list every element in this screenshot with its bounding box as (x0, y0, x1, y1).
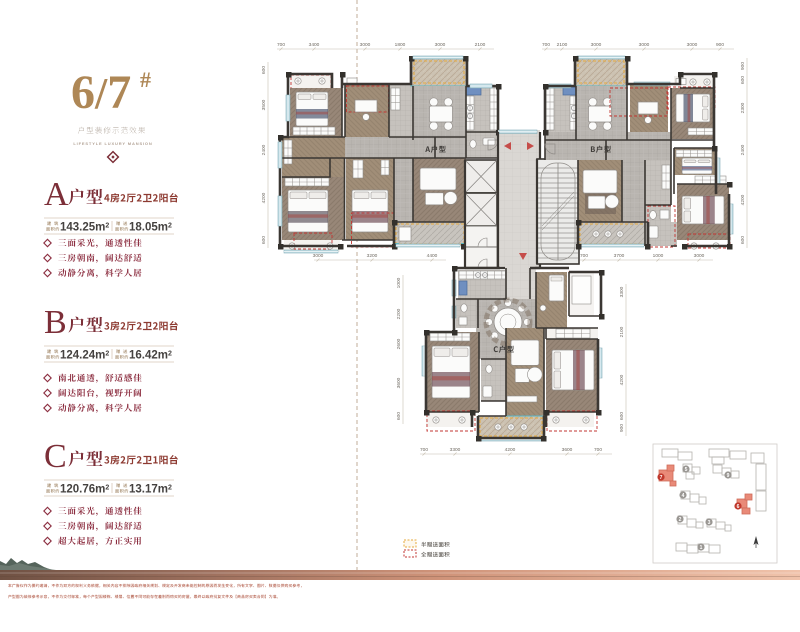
svg-text:600: 600 (396, 412, 402, 420)
svg-text:2200: 2200 (396, 308, 402, 319)
svg-text:4200: 4200 (740, 194, 746, 205)
svg-text:#: # (140, 67, 151, 92)
svg-text:3: 3 (708, 520, 711, 526)
svg-text:1800: 1800 (395, 42, 406, 48)
svg-text:3000: 3000 (687, 42, 698, 48)
svg-text:3500: 3500 (261, 99, 267, 110)
svg-text:600: 600 (619, 412, 625, 420)
svg-text:700: 700 (420, 447, 428, 453)
svg-text:1000: 1000 (396, 277, 402, 288)
svg-text:600: 600 (740, 236, 746, 244)
svg-text:3300: 3300 (619, 286, 625, 297)
svg-text:2300: 2300 (740, 102, 746, 113)
svg-text:120.76m2: 120.76m2 (60, 484, 109, 496)
svg-text:900: 900 (619, 424, 625, 432)
svg-text:7: 7 (660, 475, 663, 481)
svg-text:3000: 3000 (360, 42, 371, 48)
svg-text:3600: 3600 (562, 447, 573, 453)
svg-text:3700: 3700 (614, 253, 625, 259)
svg-text:124.24m2: 124.24m2 (60, 350, 109, 362)
svg-text:600: 600 (261, 66, 267, 74)
svg-text:600: 600 (740, 76, 746, 84)
svg-text:900: 900 (716, 42, 724, 48)
svg-text:9: 9 (727, 473, 730, 479)
svg-text:3000: 3000 (639, 42, 650, 48)
svg-text:4200: 4200 (261, 192, 267, 203)
svg-text:18.05m2: 18.05m2 (129, 222, 172, 234)
svg-text:2100: 2100 (619, 326, 625, 337)
svg-text:2600: 2600 (396, 338, 402, 349)
svg-text:1: 1 (700, 545, 703, 551)
svg-text:5: 5 (685, 467, 688, 473)
svg-text:13.17m2: 13.17m2 (129, 484, 172, 496)
svg-text:16.42m2: 16.42m2 (129, 350, 172, 362)
svg-text:6: 6 (737, 504, 740, 510)
svg-text:4400: 4400 (427, 253, 438, 259)
svg-text:3600: 3600 (396, 377, 402, 388)
svg-text:3000: 3000 (694, 253, 705, 259)
svg-text:2: 2 (679, 517, 682, 523)
svg-text:2100: 2100 (475, 42, 486, 48)
svg-text:LIFESTYLE LUXURY MANSION: LIFESTYLE LUXURY MANSION (73, 141, 152, 146)
svg-text:2100: 2100 (557, 42, 568, 48)
svg-text:3200: 3200 (367, 253, 378, 259)
svg-text:2400: 2400 (261, 144, 267, 155)
svg-text:700: 700 (542, 42, 550, 48)
svg-text:2400: 2400 (740, 144, 746, 155)
svg-text:C: C (44, 438, 67, 475)
svg-text:3000: 3000 (591, 42, 602, 48)
svg-text:3400: 3400 (309, 42, 320, 48)
svg-text:1000: 1000 (653, 253, 664, 259)
svg-text:3300: 3300 (450, 447, 461, 453)
svg-text:4200: 4200 (619, 374, 625, 385)
svg-text:3000: 3000 (313, 253, 324, 259)
svg-text:4200: 4200 (505, 447, 516, 453)
svg-text:600: 600 (261, 236, 267, 244)
svg-text:B: B (44, 304, 67, 341)
svg-text:3000: 3000 (435, 42, 446, 48)
svg-text:143.25m2: 143.25m2 (60, 222, 109, 234)
svg-text:6/7: 6/7 (71, 66, 131, 119)
svg-text:700: 700 (277, 42, 285, 48)
svg-text:4: 4 (682, 493, 685, 499)
svg-text:A: A (44, 176, 69, 213)
svg-text:700: 700 (594, 447, 602, 453)
svg-text:700: 700 (580, 253, 588, 259)
svg-text:900: 900 (740, 62, 746, 70)
